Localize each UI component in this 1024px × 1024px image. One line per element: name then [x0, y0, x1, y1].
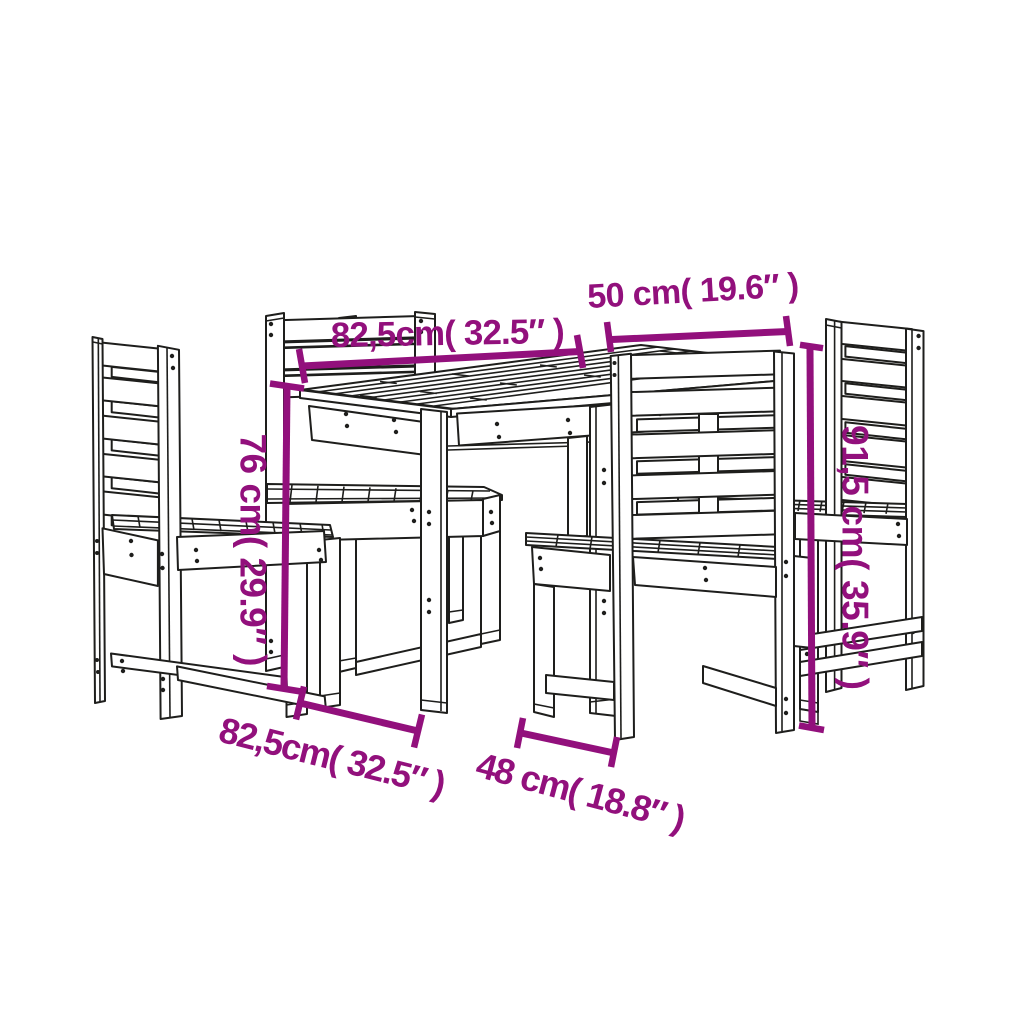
svg-text:91,5 cm( 35.9″ ): 91,5 cm( 35.9″ ): [835, 425, 876, 690]
svg-text:82,5cm( 32.5″ ): 82,5cm( 32.5″ ): [330, 312, 565, 355]
svg-text:76 cm( 29.9″ ): 76 cm( 29.9″ ): [233, 434, 274, 667]
